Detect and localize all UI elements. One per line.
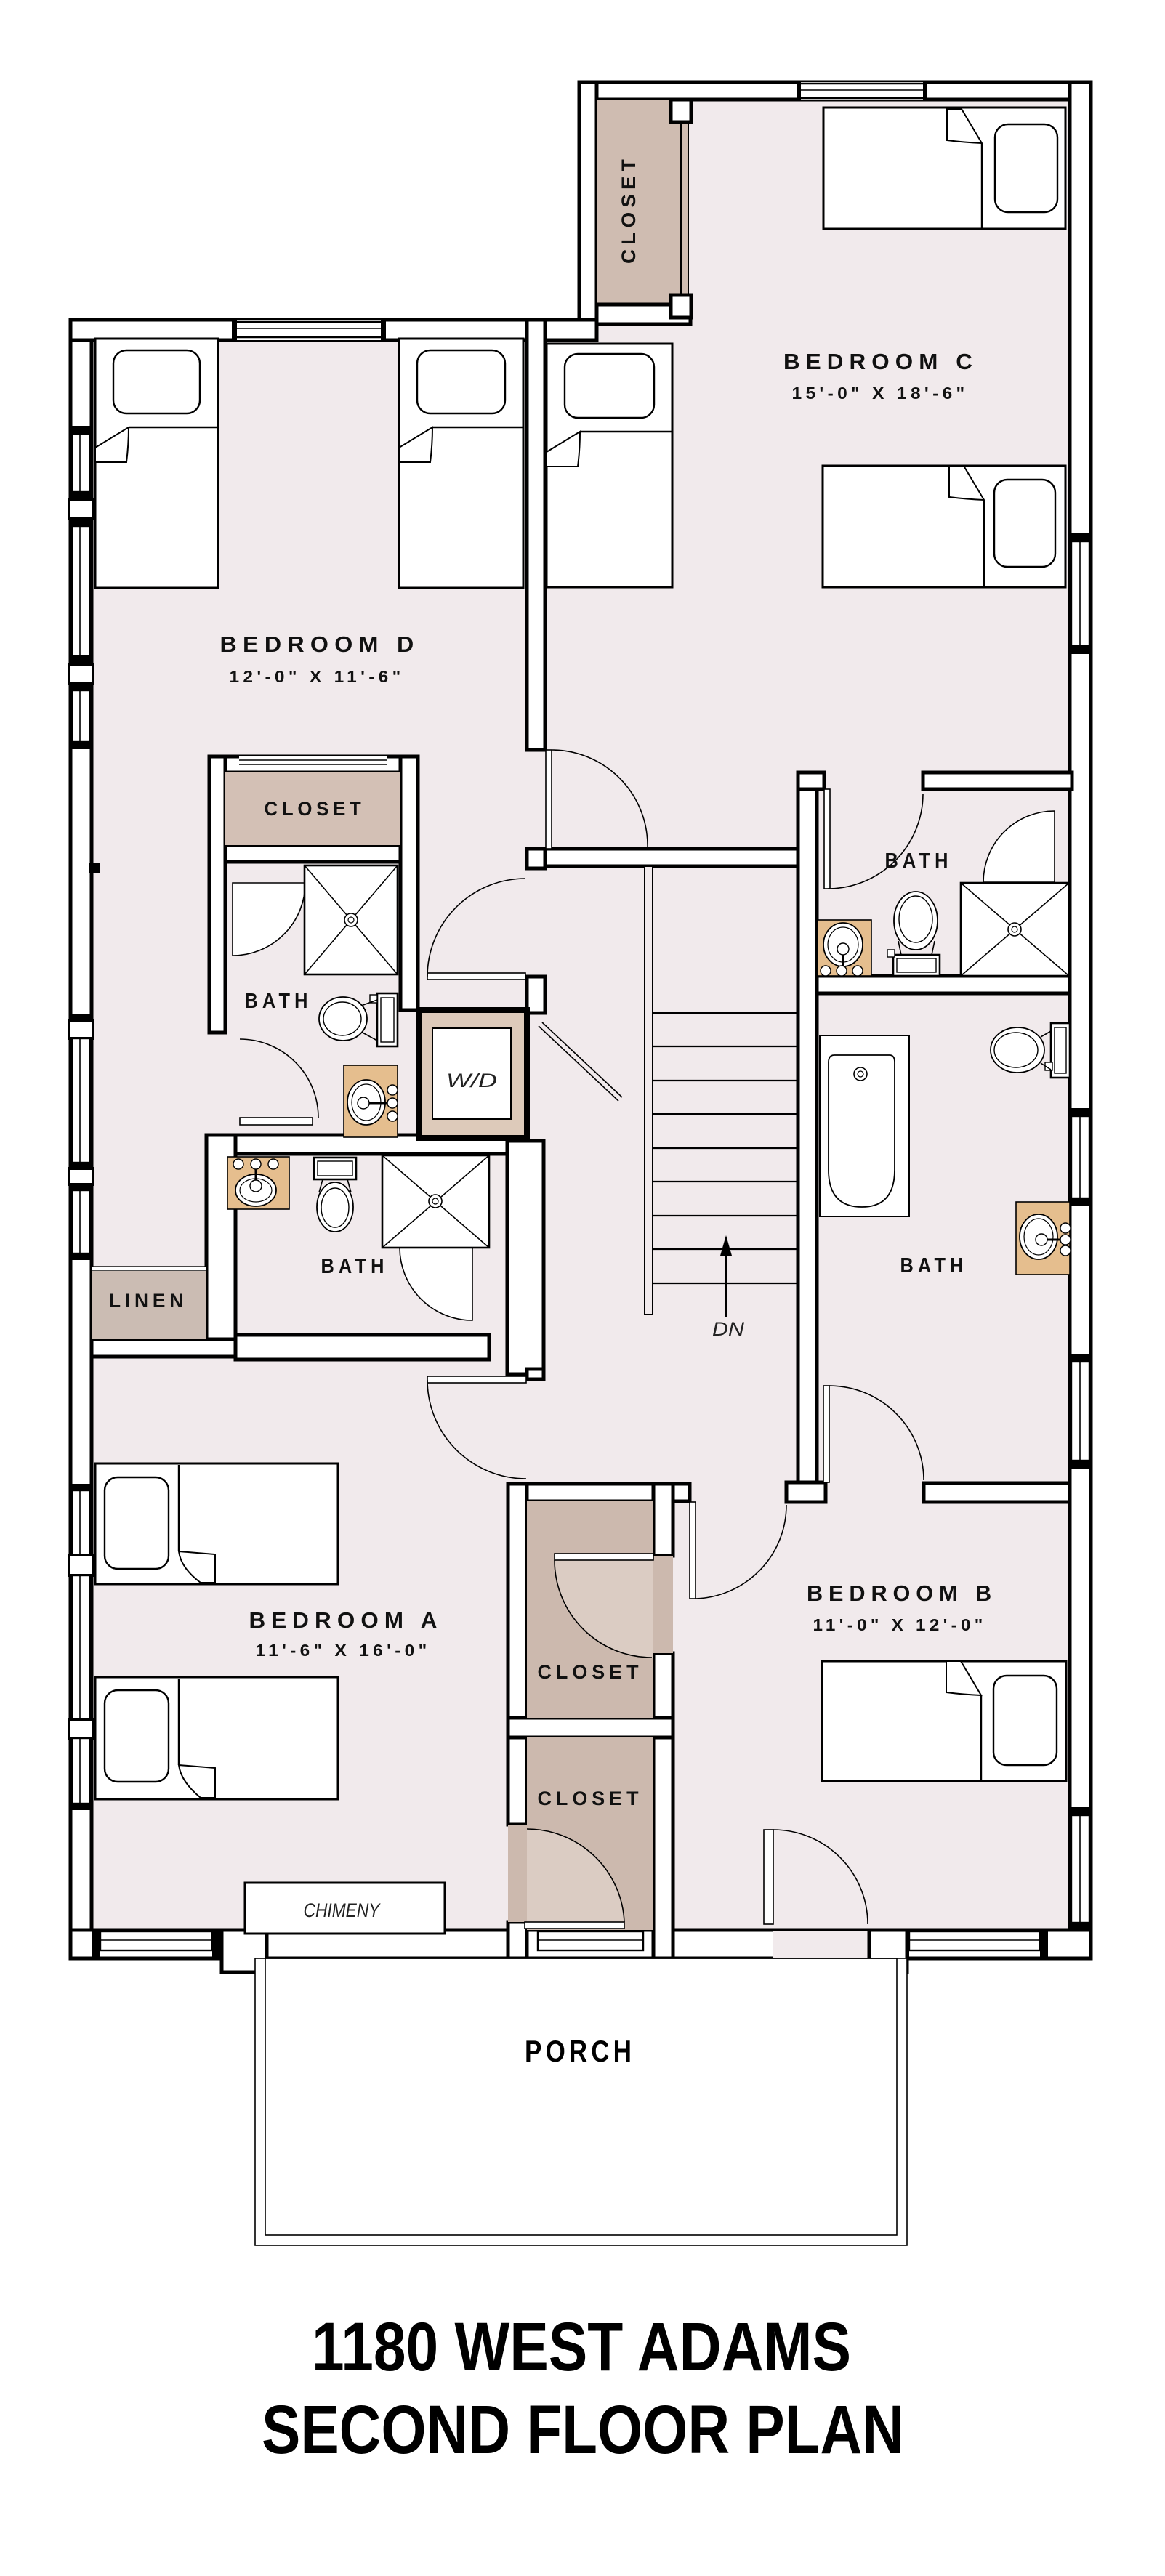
svg-text:CLOSET: CLOSET <box>538 1661 643 1683</box>
svg-text:12'-0" X 11'-6": 12'-0" X 11'-6" <box>230 667 405 686</box>
svg-text:CLOSET: CLOSET <box>538 1788 643 1809</box>
svg-text:BATH: BATH <box>245 990 313 1013</box>
svg-text:W/D: W/D <box>446 1070 497 1091</box>
svg-text:CHIMENY: CHIMENY <box>304 1899 382 1921</box>
svg-text:1180 WEST ADAMS: 1180 WEST ADAMS <box>312 2309 851 2386</box>
svg-text:SECOND FLOOR PLAN: SECOND FLOOR PLAN <box>262 2391 904 2468</box>
svg-text:DN: DN <box>712 1318 745 1340</box>
svg-text:CLOSET: CLOSET <box>265 798 366 820</box>
svg-text:11'-6" X 16'-0": 11'-6" X 16'-0" <box>256 1641 431 1660</box>
svg-text:BATH: BATH <box>321 1255 389 1278</box>
svg-text:LINEN: LINEN <box>109 1290 188 1312</box>
svg-text:BATH: BATH <box>900 1254 968 1277</box>
svg-text:BEDROOM D: BEDROOM D <box>220 631 420 657</box>
svg-text:11'-0" X 12'-0": 11'-0" X 12'-0" <box>813 1615 987 1634</box>
svg-text:BEDROOM B: BEDROOM B <box>807 1580 997 1606</box>
svg-text:PORCH: PORCH <box>525 2034 635 2068</box>
svg-text:BEDROOM C: BEDROOM C <box>783 349 978 374</box>
svg-text:BATH: BATH <box>885 849 953 873</box>
svg-text:BEDROOM A: BEDROOM A <box>249 1607 443 1633</box>
svg-text:CLOSET: CLOSET <box>618 155 640 264</box>
svg-text:15'-0" X 18'-6": 15'-0" X 18'-6" <box>792 384 969 403</box>
